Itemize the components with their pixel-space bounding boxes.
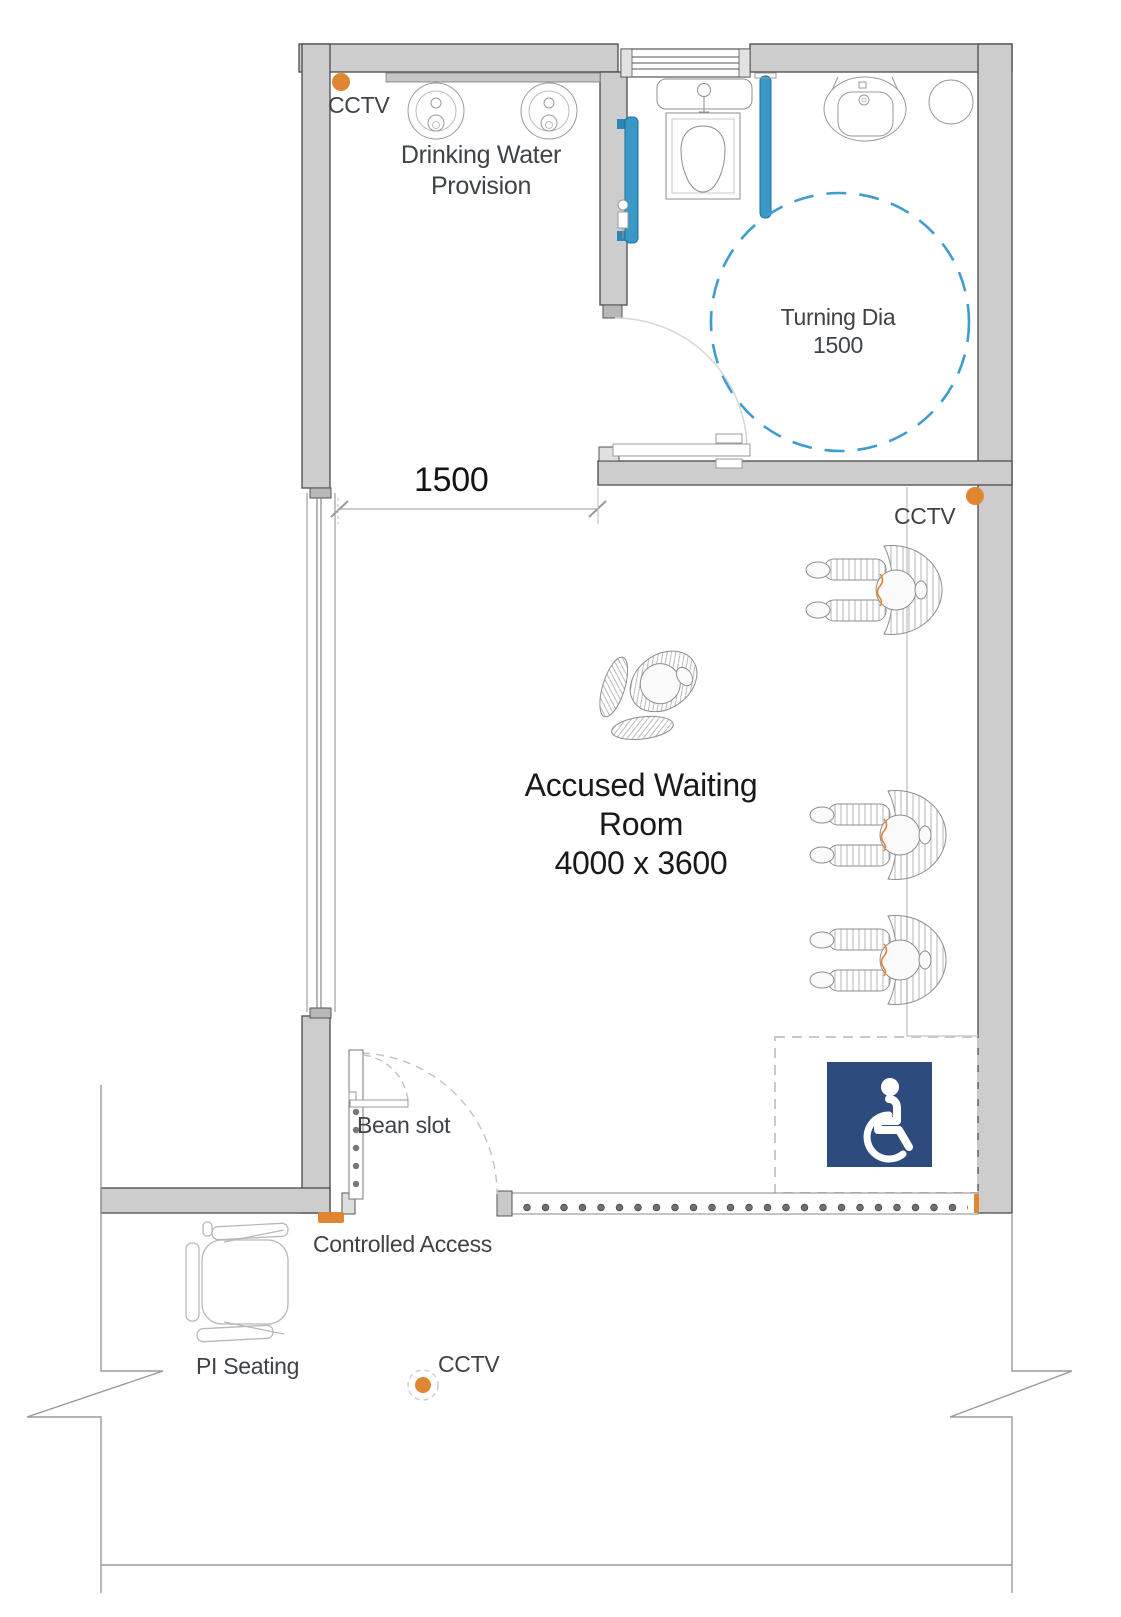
bean-slot-shelf	[350, 1100, 408, 1107]
walls	[101, 44, 1012, 1213]
floor-plan: CCTV Drinking Water Provision Turning Di…	[0, 0, 1121, 1617]
stool	[929, 80, 973, 124]
wall-right	[978, 44, 1012, 1213]
wall-top-right	[750, 44, 1012, 72]
wall-waiting-room-top	[598, 461, 1012, 485]
cctv-dot-corridor	[408, 1370, 438, 1400]
cctv-label-waiting-room: CCTV	[894, 503, 955, 530]
wall-bottom-left	[101, 1188, 330, 1213]
wheelchair-icon	[827, 1062, 932, 1167]
cctv-label-corridor: CCTV	[438, 1351, 499, 1378]
window-top	[621, 49, 750, 77]
controlled-access-marker	[318, 1212, 344, 1223]
cctv-label-washroom: CCTV	[328, 92, 389, 119]
bean-slot-label: Bean slot	[357, 1112, 450, 1139]
turning-dia-label: Turning Dia 1500	[758, 303, 918, 359]
seated-person-3	[810, 916, 946, 1005]
security-grille-strip	[497, 1191, 979, 1216]
drinking-water-counter	[386, 73, 600, 82]
wall-washroom-divider	[600, 72, 627, 305]
seated-person-1	[806, 546, 942, 635]
pi-seating-chair	[186, 1222, 288, 1342]
controlled-access-label: Controlled Access	[313, 1231, 492, 1258]
wall-top-left	[299, 44, 618, 72]
room-dimensions: 4000 x 3600	[441, 844, 841, 883]
wall-left-lower	[302, 1016, 330, 1213]
pi-seating-label: PI Seating	[196, 1353, 299, 1380]
washroom-door	[613, 318, 750, 468]
standing-person	[571, 618, 722, 766]
drinking-water-label: Drinking Water Provision	[381, 140, 581, 201]
window-left-partition	[307, 493, 335, 1012]
wall-left-upper	[302, 44, 330, 488]
drinking-fountain-1	[408, 83, 464, 139]
door-width-dimension-label: 1500	[414, 461, 488, 500]
cctv-dot-washroom	[332, 73, 350, 91]
cctv-dot-waiting-room	[966, 487, 984, 505]
drinking-fountain-2	[521, 83, 577, 139]
toilet	[657, 79, 752, 199]
room-title: Accused Waiting Room 4000 x 3600	[441, 766, 841, 883]
washbasin	[824, 77, 906, 141]
